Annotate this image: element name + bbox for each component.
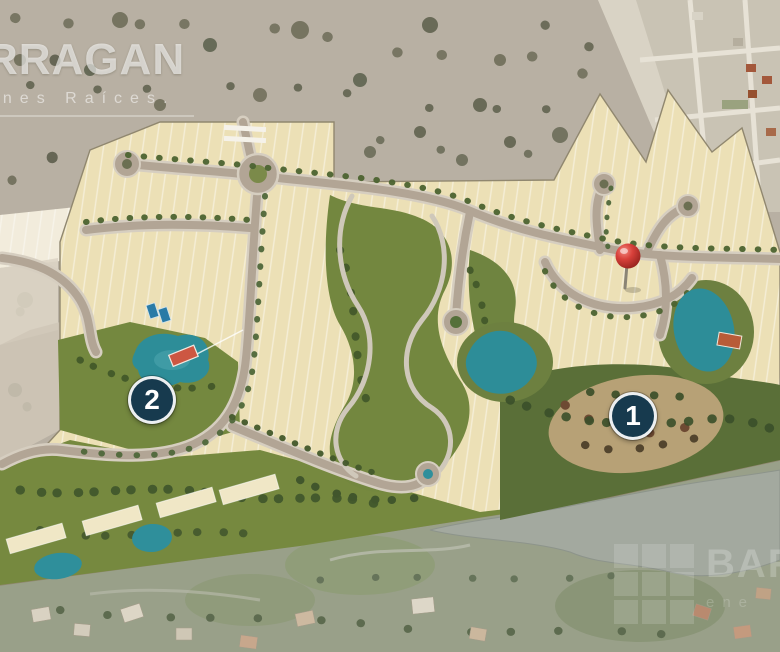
master-plan-map: 1 2 RRAGAN enes Raíces. BARR ene <box>0 0 780 652</box>
map-marker-1[interactable]: 1 <box>609 392 657 440</box>
site-plan-graphic <box>0 0 780 652</box>
marker-1-label: 1 <box>625 402 641 430</box>
map-marker-2[interactable]: 2 <box>128 376 176 424</box>
marker-2-label: 2 <box>144 386 160 414</box>
